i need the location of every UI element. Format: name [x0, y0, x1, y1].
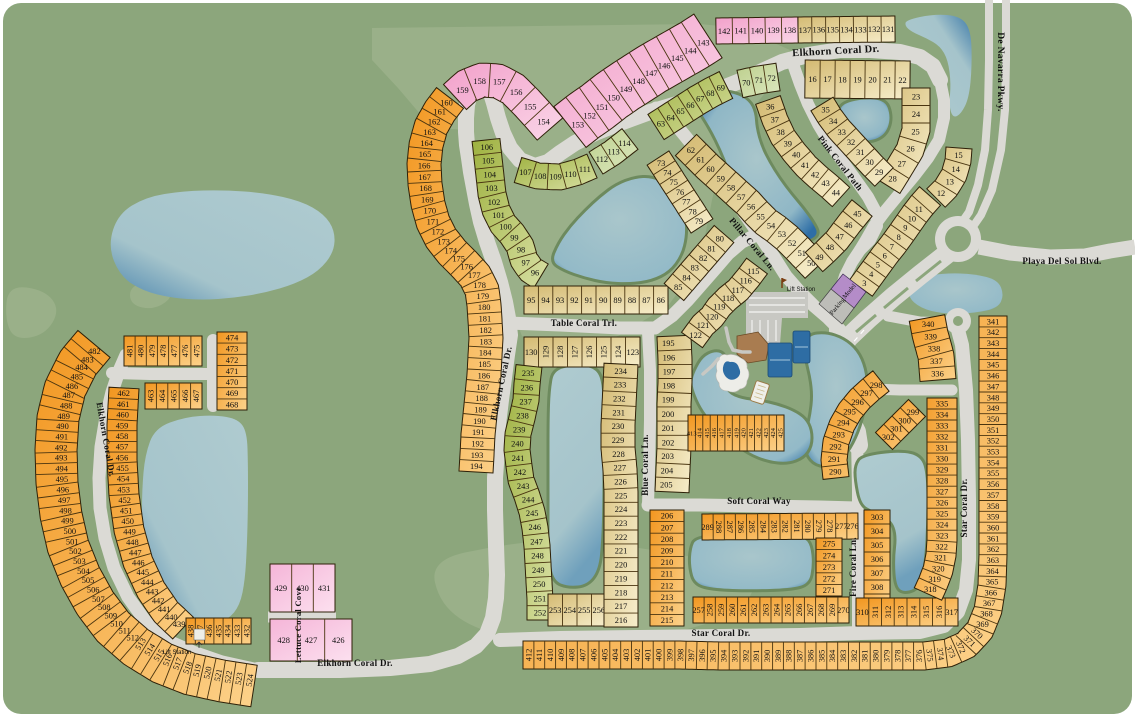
- svg-text:329: 329: [936, 466, 949, 475]
- svg-text:144: 144: [684, 46, 697, 55]
- svg-text:23: 23: [912, 93, 920, 102]
- svg-text:399: 399: [665, 649, 674, 662]
- svg-text:184: 184: [479, 349, 492, 358]
- svg-text:477: 477: [170, 345, 179, 358]
- svg-text:194: 194: [470, 462, 483, 471]
- svg-text:393: 393: [731, 650, 740, 663]
- svg-text:158: 158: [473, 77, 486, 86]
- svg-text:388: 388: [785, 650, 794, 663]
- svg-text:133: 133: [854, 25, 867, 34]
- svg-text:498: 498: [59, 507, 72, 516]
- svg-text:326: 326: [936, 499, 949, 508]
- svg-text:24: 24: [912, 110, 921, 119]
- svg-text:375: 375: [924, 649, 934, 663]
- svg-text:94: 94: [541, 296, 550, 305]
- svg-text:241: 241: [512, 454, 525, 463]
- svg-text:54: 54: [767, 221, 776, 230]
- svg-text:336: 336: [931, 370, 944, 379]
- svg-text:193: 193: [471, 451, 484, 460]
- svg-text:7: 7: [890, 242, 894, 251]
- svg-text:254: 254: [564, 606, 577, 615]
- svg-text:104: 104: [484, 170, 497, 179]
- svg-text:406: 406: [589, 649, 598, 662]
- svg-text:365: 365: [986, 578, 999, 587]
- svg-text:356: 356: [987, 480, 1000, 489]
- svg-text:136: 136: [813, 26, 826, 35]
- svg-text:279: 279: [814, 520, 823, 533]
- svg-text:450: 450: [121, 517, 134, 526]
- svg-text:454: 454: [117, 475, 130, 484]
- svg-text:313: 313: [897, 606, 906, 619]
- svg-text:101: 101: [492, 211, 505, 220]
- svg-text:455: 455: [116, 464, 129, 473]
- svg-text:115: 115: [747, 267, 759, 276]
- svg-text:335: 335: [936, 399, 949, 408]
- svg-text:347: 347: [987, 382, 1000, 391]
- svg-text:267: 267: [806, 604, 815, 617]
- svg-text:Star Coral Dr.: Star Coral Dr.: [692, 628, 751, 638]
- svg-text:346: 346: [987, 372, 1000, 381]
- svg-text:457: 457: [116, 443, 129, 452]
- svg-text:114: 114: [618, 139, 631, 148]
- svg-text:310: 310: [856, 608, 869, 617]
- svg-text:253: 253: [549, 606, 562, 615]
- svg-text:167: 167: [418, 173, 431, 182]
- svg-text:344: 344: [987, 350, 1000, 359]
- svg-text:249: 249: [532, 566, 545, 575]
- svg-text:468: 468: [226, 400, 239, 409]
- svg-text:294: 294: [837, 419, 850, 428]
- svg-text:446: 446: [132, 559, 145, 568]
- svg-text:424: 424: [770, 427, 777, 438]
- svg-text:89: 89: [613, 296, 621, 305]
- svg-text:288: 288: [714, 521, 723, 534]
- svg-text:383: 383: [839, 650, 848, 663]
- svg-text:205: 205: [660, 481, 673, 490]
- svg-text:452: 452: [118, 496, 131, 505]
- svg-text:166: 166: [418, 161, 431, 170]
- svg-text:453: 453: [117, 485, 130, 494]
- svg-text:9: 9: [903, 224, 907, 233]
- svg-text:200: 200: [662, 410, 675, 419]
- svg-text:401: 401: [644, 649, 653, 662]
- svg-text:164: 164: [420, 139, 433, 148]
- svg-text:290: 290: [829, 468, 842, 477]
- svg-text:386: 386: [806, 650, 815, 663]
- svg-text:233: 233: [614, 381, 627, 390]
- svg-text:182: 182: [479, 326, 492, 335]
- svg-text:76: 76: [676, 188, 684, 197]
- svg-text:236: 236: [521, 383, 534, 392]
- svg-text:479: 479: [148, 345, 157, 358]
- svg-text:36: 36: [766, 102, 774, 111]
- svg-text:203: 203: [661, 452, 674, 461]
- svg-text:187: 187: [477, 383, 490, 392]
- svg-text:40: 40: [792, 150, 800, 159]
- svg-text:208: 208: [661, 535, 674, 544]
- svg-text:331: 331: [936, 444, 949, 453]
- svg-text:500: 500: [64, 527, 77, 536]
- svg-text:493: 493: [55, 454, 68, 463]
- svg-text:282: 282: [781, 520, 790, 533]
- svg-text:Lettuce Coral Cove: Lettuce Coral Cove: [293, 587, 303, 663]
- svg-text:328: 328: [936, 477, 949, 486]
- svg-text:128: 128: [556, 346, 565, 359]
- svg-text:213: 213: [661, 593, 674, 602]
- svg-text:322: 322: [935, 543, 948, 552]
- svg-text:87: 87: [642, 296, 650, 305]
- svg-text:232: 232: [613, 395, 626, 404]
- svg-text:209: 209: [661, 547, 674, 556]
- svg-text:28: 28: [888, 175, 896, 184]
- svg-text:497: 497: [58, 496, 71, 505]
- svg-text:460: 460: [116, 411, 129, 420]
- svg-text:68: 68: [706, 89, 714, 98]
- svg-text:278: 278: [825, 520, 834, 533]
- svg-text:224: 224: [615, 505, 628, 514]
- svg-text:250: 250: [533, 580, 546, 589]
- svg-text:17: 17: [823, 75, 831, 84]
- svg-text:31: 31: [856, 148, 864, 157]
- svg-text:185: 185: [478, 360, 491, 369]
- svg-text:169: 169: [421, 195, 434, 204]
- svg-text:138: 138: [784, 26, 797, 35]
- svg-text:237: 237: [519, 398, 532, 407]
- svg-text:11: 11: [915, 205, 923, 214]
- svg-text:177: 177: [468, 271, 481, 280]
- svg-text:456: 456: [116, 453, 129, 462]
- svg-text:212: 212: [661, 581, 674, 590]
- svg-text:202: 202: [662, 438, 675, 447]
- svg-text:287: 287: [725, 521, 734, 534]
- svg-text:150: 150: [607, 94, 620, 103]
- svg-text:Lift Station: Lift Station: [163, 650, 191, 656]
- svg-text:190: 190: [473, 417, 486, 426]
- svg-text:330: 330: [936, 455, 949, 464]
- svg-text:459: 459: [116, 421, 129, 430]
- svg-text:433: 433: [233, 625, 242, 638]
- svg-text:58: 58: [727, 184, 735, 193]
- svg-text:122: 122: [689, 331, 702, 340]
- svg-text:247: 247: [530, 537, 543, 546]
- svg-text:422: 422: [756, 428, 763, 438]
- svg-text:355: 355: [987, 469, 1000, 478]
- svg-text:319: 319: [928, 575, 941, 584]
- svg-text:417: 417: [719, 427, 726, 438]
- svg-text:218: 218: [615, 588, 628, 597]
- svg-text:127: 127: [571, 346, 580, 359]
- svg-text:266: 266: [795, 604, 804, 617]
- svg-text:217: 217: [615, 602, 628, 611]
- svg-text:201: 201: [662, 424, 675, 433]
- svg-text:30: 30: [865, 158, 873, 167]
- svg-text:391: 391: [752, 650, 761, 663]
- svg-text:262: 262: [750, 604, 759, 617]
- svg-text:442: 442: [152, 596, 165, 605]
- svg-text:380: 380: [872, 650, 881, 663]
- svg-text:444: 444: [141, 578, 154, 587]
- svg-text:108: 108: [534, 172, 547, 181]
- svg-text:46: 46: [844, 221, 852, 230]
- svg-text:74: 74: [663, 169, 672, 178]
- svg-text:397: 397: [687, 649, 696, 662]
- svg-text:107: 107: [519, 168, 532, 177]
- svg-text:82: 82: [699, 254, 707, 263]
- svg-text:307: 307: [871, 569, 884, 578]
- svg-text:35: 35: [821, 106, 829, 115]
- svg-text:173: 173: [437, 237, 450, 246]
- svg-text:69: 69: [717, 84, 725, 93]
- svg-text:439: 439: [173, 620, 186, 629]
- svg-text:354: 354: [987, 458, 1000, 467]
- svg-text:341: 341: [987, 317, 1000, 326]
- svg-text:51: 51: [798, 249, 806, 258]
- svg-text:32: 32: [847, 138, 855, 147]
- svg-text:102: 102: [488, 198, 501, 207]
- svg-text:100: 100: [499, 223, 512, 232]
- svg-text:148: 148: [632, 77, 645, 86]
- svg-text:475: 475: [192, 345, 201, 358]
- svg-text:489: 489: [57, 412, 70, 421]
- svg-text:75: 75: [670, 178, 678, 187]
- svg-text:15: 15: [954, 151, 962, 160]
- svg-text:39: 39: [784, 140, 792, 149]
- svg-text:361: 361: [987, 534, 1000, 543]
- svg-text:363: 363: [987, 556, 1000, 565]
- svg-text:142: 142: [718, 27, 731, 36]
- svg-text:464: 464: [158, 389, 167, 402]
- svg-text:161: 161: [433, 108, 446, 117]
- svg-text:429: 429: [275, 584, 288, 593]
- svg-text:67: 67: [696, 95, 704, 104]
- svg-text:154: 154: [537, 117, 550, 126]
- svg-text:474: 474: [226, 334, 239, 343]
- svg-text:449: 449: [123, 528, 136, 537]
- svg-text:De Navarra Pkwy.: De Navarra Pkwy.: [995, 32, 1005, 111]
- svg-text:216: 216: [615, 616, 628, 625]
- svg-text:Fire Coral Ln.: Fire Coral Ln.: [848, 537, 858, 597]
- svg-text:251: 251: [534, 594, 547, 603]
- svg-text:140: 140: [751, 26, 764, 35]
- svg-text:183: 183: [480, 337, 493, 346]
- svg-text:389: 389: [774, 650, 783, 663]
- svg-text:260: 260: [728, 604, 737, 617]
- svg-text:Soft Coral Way: Soft Coral Way: [727, 496, 791, 506]
- svg-text:403: 403: [622, 649, 631, 662]
- svg-text:137: 137: [799, 26, 812, 35]
- svg-text:352: 352: [987, 437, 1000, 446]
- svg-text:258: 258: [706, 604, 715, 617]
- svg-text:412: 412: [524, 649, 533, 662]
- svg-text:88: 88: [628, 296, 636, 305]
- svg-text:95: 95: [527, 296, 535, 305]
- svg-text:248: 248: [531, 552, 544, 561]
- svg-text:196: 196: [663, 353, 676, 362]
- svg-text:26: 26: [906, 144, 914, 153]
- svg-text:149: 149: [620, 85, 633, 94]
- svg-text:143: 143: [697, 39, 710, 48]
- svg-text:280: 280: [803, 520, 812, 533]
- svg-text:492: 492: [55, 443, 68, 452]
- svg-text:126: 126: [585, 346, 594, 359]
- svg-text:13: 13: [946, 178, 954, 187]
- svg-text:165: 165: [419, 150, 432, 159]
- svg-text:180: 180: [478, 303, 491, 312]
- svg-text:160: 160: [440, 98, 453, 107]
- svg-text:485: 485: [71, 373, 84, 382]
- svg-text:234: 234: [614, 367, 627, 376]
- svg-text:318: 318: [924, 585, 937, 594]
- svg-text:362: 362: [987, 545, 1000, 554]
- svg-text:321: 321: [934, 554, 947, 563]
- svg-text:238: 238: [516, 412, 529, 421]
- svg-text:118: 118: [722, 294, 734, 303]
- svg-text:242: 242: [514, 468, 527, 477]
- svg-text:59: 59: [717, 174, 725, 183]
- svg-text:423: 423: [763, 427, 770, 438]
- svg-text:252: 252: [534, 609, 547, 618]
- svg-text:434: 434: [224, 624, 233, 637]
- svg-text:156: 156: [510, 88, 523, 97]
- svg-text:350: 350: [987, 415, 1000, 424]
- svg-text:113: 113: [607, 148, 619, 157]
- svg-text:291: 291: [828, 455, 841, 464]
- svg-text:465: 465: [169, 390, 178, 403]
- svg-text:226: 226: [614, 478, 627, 487]
- svg-text:476: 476: [181, 345, 190, 358]
- svg-text:342: 342: [987, 328, 1000, 337]
- svg-text:304: 304: [871, 527, 884, 536]
- svg-text:147: 147: [645, 69, 658, 78]
- svg-text:451: 451: [120, 507, 133, 516]
- svg-text:490: 490: [56, 422, 69, 431]
- svg-text:70: 70: [742, 79, 750, 88]
- svg-text:229: 229: [612, 436, 625, 445]
- svg-text:206: 206: [661, 512, 674, 521]
- svg-text:257: 257: [692, 606, 705, 615]
- svg-text:65: 65: [676, 107, 684, 116]
- svg-text:428: 428: [277, 636, 290, 645]
- svg-text:81: 81: [707, 244, 715, 253]
- svg-text:327: 327: [936, 488, 949, 497]
- svg-text:155: 155: [524, 102, 537, 111]
- svg-text:168: 168: [419, 184, 432, 193]
- svg-text:220: 220: [615, 561, 628, 570]
- svg-text:405: 405: [600, 649, 609, 662]
- svg-text:415: 415: [704, 427, 711, 438]
- svg-text:315: 315: [922, 606, 931, 619]
- svg-text:111: 111: [579, 165, 591, 174]
- svg-text:191: 191: [472, 428, 485, 437]
- svg-text:243: 243: [517, 482, 530, 491]
- svg-text:37: 37: [771, 115, 779, 124]
- svg-text:505: 505: [82, 576, 95, 585]
- svg-text:436: 436: [205, 625, 214, 638]
- svg-text:215: 215: [661, 616, 674, 625]
- svg-text:501: 501: [66, 538, 79, 547]
- svg-text:207: 207: [661, 523, 674, 532]
- svg-text:408: 408: [568, 649, 577, 662]
- svg-text:103: 103: [485, 184, 498, 193]
- svg-text:214: 214: [661, 605, 674, 614]
- svg-text:349: 349: [987, 404, 1000, 413]
- svg-text:45: 45: [853, 210, 861, 219]
- svg-text:239: 239: [513, 425, 526, 434]
- svg-text:91: 91: [585, 296, 593, 305]
- svg-text:358: 358: [987, 502, 1000, 511]
- svg-text:435: 435: [214, 625, 223, 638]
- svg-text:231: 231: [612, 408, 625, 417]
- svg-text:79: 79: [695, 217, 703, 226]
- svg-text:105: 105: [482, 157, 495, 166]
- svg-text:298: 298: [870, 381, 883, 390]
- svg-text:84: 84: [682, 273, 691, 282]
- svg-text:400: 400: [655, 649, 664, 662]
- svg-text:Star Coral Dr.: Star Coral Dr.: [959, 479, 969, 538]
- svg-text:473: 473: [226, 345, 239, 354]
- svg-text:80: 80: [716, 235, 724, 244]
- svg-text:186: 186: [478, 371, 491, 380]
- svg-text:320: 320: [932, 564, 945, 573]
- svg-text:443: 443: [146, 587, 159, 596]
- svg-text:480: 480: [137, 345, 146, 358]
- svg-text:Blue Coral Ln.: Blue Coral Ln.: [640, 434, 650, 495]
- svg-text:381: 381: [861, 650, 870, 663]
- svg-text:398: 398: [676, 649, 685, 662]
- svg-text:18: 18: [838, 75, 846, 84]
- svg-text:306: 306: [871, 555, 884, 564]
- svg-text:410: 410: [546, 649, 555, 662]
- svg-text:463: 463: [147, 390, 156, 403]
- svg-text:98: 98: [517, 246, 525, 255]
- svg-text:204: 204: [661, 466, 674, 475]
- svg-text:420: 420: [741, 427, 748, 438]
- svg-text:366: 366: [985, 589, 998, 598]
- svg-text:478: 478: [159, 345, 168, 358]
- svg-text:Lift Station: Lift Station: [787, 287, 815, 293]
- svg-text:52: 52: [788, 239, 796, 248]
- svg-text:130: 130: [525, 348, 538, 357]
- svg-text:431: 431: [318, 584, 331, 593]
- svg-text:110: 110: [564, 170, 576, 179]
- svg-text:469: 469: [226, 389, 239, 398]
- svg-text:131: 131: [882, 25, 895, 34]
- svg-text:416: 416: [711, 427, 718, 438]
- svg-text:27: 27: [898, 160, 906, 169]
- svg-text:57: 57: [737, 193, 745, 202]
- svg-text:409: 409: [557, 649, 566, 662]
- svg-text:379: 379: [882, 650, 891, 663]
- svg-text:384: 384: [828, 649, 837, 662]
- svg-text:268: 268: [817, 604, 826, 617]
- svg-text:178: 178: [473, 281, 486, 290]
- svg-text:97: 97: [522, 258, 530, 267]
- svg-text:62: 62: [687, 146, 695, 155]
- svg-text:255: 255: [578, 606, 591, 615]
- svg-text:302: 302: [882, 433, 895, 442]
- svg-text:432: 432: [242, 625, 251, 638]
- svg-text:3: 3: [862, 279, 866, 288]
- svg-text:276: 276: [846, 522, 859, 531]
- svg-text:339: 339: [924, 333, 937, 342]
- svg-text:188: 188: [475, 394, 488, 403]
- svg-text:297: 297: [860, 389, 873, 398]
- svg-text:227: 227: [614, 464, 627, 473]
- svg-text:421: 421: [748, 428, 755, 438]
- svg-text:270: 270: [837, 606, 850, 615]
- svg-text:281: 281: [792, 520, 801, 533]
- svg-text:96: 96: [531, 268, 539, 277]
